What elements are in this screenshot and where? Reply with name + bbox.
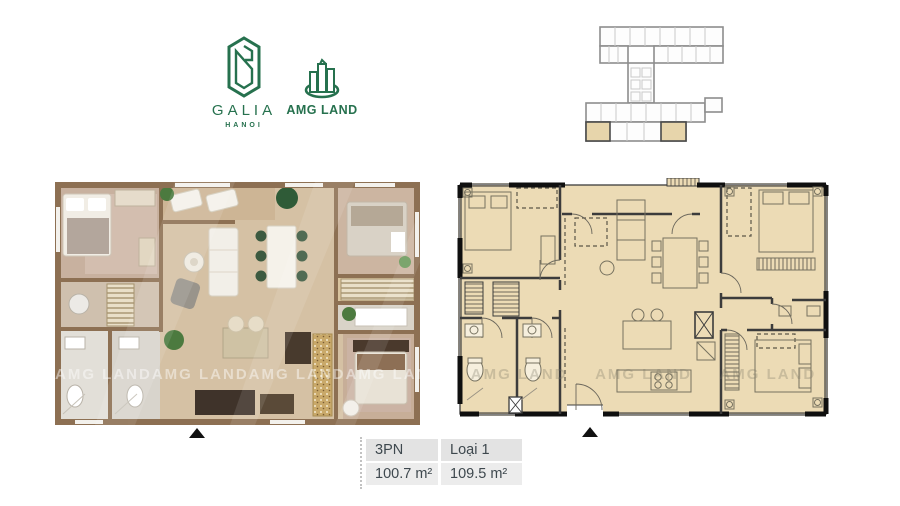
spec-gross-area: 109.5 m² (441, 463, 522, 485)
spec-table-dotted-edge (360, 437, 362, 489)
amg-land-wordmark: AMG LAND (286, 103, 358, 117)
entrance-recess (567, 405, 603, 417)
galia-wordmark: GALIA (206, 102, 282, 119)
floorplan-3d-render: AMG LAND AMG LAND AMG LAND AMG LAND (55, 182, 420, 425)
spec-table: 3PN Loại 1 100.7 m² 109.5 m² (366, 439, 522, 485)
amg-land-logo: AMG LAND (286, 58, 358, 117)
galia-logo: GALIA HANOI (206, 36, 282, 129)
spec-carpet-area: 100.7 m² (366, 463, 438, 485)
entrance-arrow-right (582, 427, 598, 437)
render-plan-drawing (55, 182, 420, 425)
galia-monogram-icon (224, 36, 264, 98)
technical-plan-drawing (457, 178, 830, 420)
galia-subtitle: HANOI (206, 122, 282, 129)
keyplan-diagram (578, 24, 738, 146)
spec-type-header: Loại 1 (441, 439, 522, 461)
page-canvas: GALIA HANOI AMG LAND (0, 0, 900, 506)
floorplan-technical: AMG LAND AMG LAND AMG LAND (457, 178, 830, 420)
spec-bedrooms-header: 3PN (366, 439, 438, 461)
ac-ledge (667, 178, 699, 186)
entrance-arrow-left (189, 428, 205, 438)
amg-building-icon (300, 58, 344, 100)
